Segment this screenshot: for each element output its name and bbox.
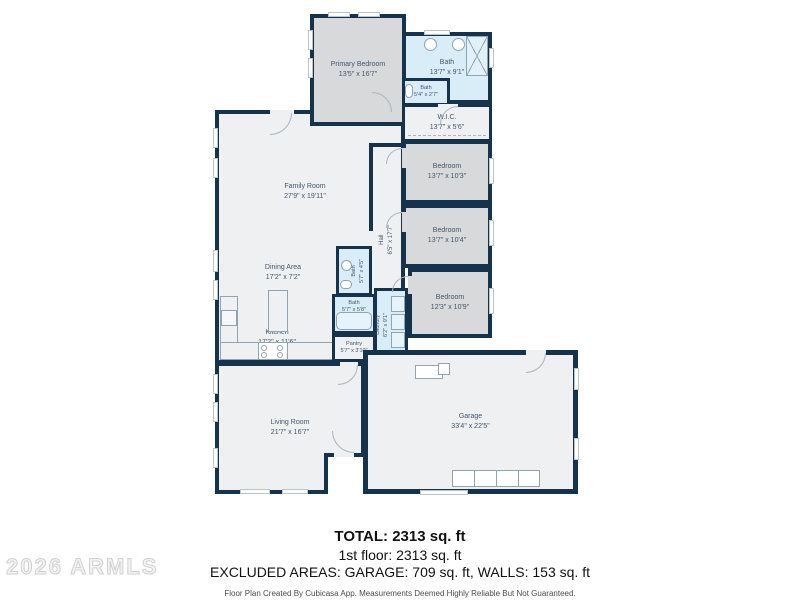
utility-box-icon <box>438 363 450 375</box>
room-bedroom-1: Bedroom 13'7" x 10'3" <box>402 140 492 204</box>
sink-icon <box>424 38 437 51</box>
window <box>213 280 218 300</box>
room-dims: 5'7" x 4'5" <box>359 259 367 283</box>
room-label: Family Room <box>284 182 325 192</box>
kitchen-island <box>268 290 288 332</box>
entry-notch <box>324 453 365 494</box>
window <box>213 158 218 178</box>
burner-icon <box>277 352 283 358</box>
room-dims: 13'7" x 10'4" <box>428 236 466 246</box>
room-dims: 13'7" x 9'1" <box>430 68 465 78</box>
burner-icon <box>261 345 267 351</box>
window <box>213 402 218 422</box>
laundry-cabinet <box>391 332 405 348</box>
window <box>358 12 380 17</box>
room-dims: 13'5" x 16'7" <box>339 70 377 80</box>
window <box>489 158 494 184</box>
room-label: Pantry <box>346 341 362 348</box>
room-bedroom-3: Bedroom 12'3" x 10'9" <box>408 268 492 338</box>
room-label: Hall <box>378 235 387 245</box>
room-dims: 17'2" x 7'2" <box>266 273 301 283</box>
window <box>420 490 468 495</box>
burner-icon <box>277 345 283 351</box>
room-label: Bath <box>348 300 359 307</box>
room-dining-area: Dining Area 17'2" x 7'2" <box>238 263 328 283</box>
burner-icon <box>261 352 267 358</box>
window <box>574 438 579 460</box>
window <box>213 250 218 272</box>
washer-icon <box>391 296 405 312</box>
storage-divider <box>496 471 497 486</box>
room-label: Bath <box>440 58 454 68</box>
hall-wall <box>369 143 402 147</box>
window <box>489 48 494 68</box>
disclaimer: Floor Plan Created By Cubicasa App. Meas… <box>0 589 800 598</box>
room-label: Bath <box>351 265 359 276</box>
room-dims: 21'7" x 16'7" <box>271 428 309 438</box>
room-label: Bedroom <box>433 226 461 236</box>
window <box>240 489 270 494</box>
window <box>308 30 313 50</box>
room-label: Bedroom <box>433 162 461 172</box>
front-doorway <box>334 453 354 457</box>
window <box>308 58 313 78</box>
sink-icon <box>452 38 465 51</box>
total-area: TOTAL: 2313 sq. ft <box>0 528 800 547</box>
room-dims: 12'3" x 10'9" <box>431 303 469 313</box>
window <box>489 288 494 314</box>
room-label: Bath <box>420 85 431 92</box>
room-dims: 13'7" x 5'6" <box>430 123 465 133</box>
room-dims: 6'2" x 9'1" <box>383 313 391 337</box>
refrigerator-icon <box>221 310 237 326</box>
sink-icon <box>341 260 352 271</box>
bedroom-1-doorway <box>402 148 407 168</box>
room-label: Living Room <box>271 418 310 428</box>
floor-plan-page: Family Room 27'9" x 19'11" Dining Area 1… <box>0 0 800 600</box>
window <box>328 12 350 17</box>
window <box>213 128 218 148</box>
room-label: Laundry <box>375 315 383 335</box>
window <box>282 489 308 494</box>
toilet-icon <box>340 280 352 289</box>
bathtub-icon <box>336 312 372 330</box>
storage-divider <box>474 471 475 486</box>
armls-watermark: 2026 ARMLS <box>6 554 158 580</box>
window <box>213 374 218 394</box>
bedroom-3-doorway <box>408 276 413 294</box>
room-dims: 6'5" x 17'7" <box>387 225 396 255</box>
window <box>574 368 579 390</box>
room-label: Dining Area <box>265 263 301 273</box>
window <box>489 220 494 246</box>
room-dims: 5'4" x 2'7" <box>414 92 438 99</box>
room-dims: 33'4" x 22'5" <box>451 422 489 432</box>
bedroom-2-doorway <box>402 212 407 232</box>
room-dims: 27'9" x 19'11" <box>284 192 326 202</box>
room-dims: 13'7" x 10'3" <box>428 172 466 182</box>
room-bedroom-2: Bedroom 13'7" x 10'4" <box>402 204 492 268</box>
room-laundry-label: Laundry 6'2" x 9'1" <box>374 302 392 348</box>
shower-icon <box>466 36 488 76</box>
window <box>213 448 218 468</box>
window <box>424 30 450 35</box>
room-label: Bedroom <box>436 293 464 303</box>
closet-rail <box>408 135 486 136</box>
dryer-icon <box>391 314 405 330</box>
room-label: Garage <box>459 412 482 422</box>
room-family-room: Family Room 27'9" x 19'11" <box>250 182 360 202</box>
room-label: Primary Bedroom <box>331 60 385 70</box>
toilet-icon <box>405 84 413 98</box>
storage-divider <box>518 471 519 486</box>
